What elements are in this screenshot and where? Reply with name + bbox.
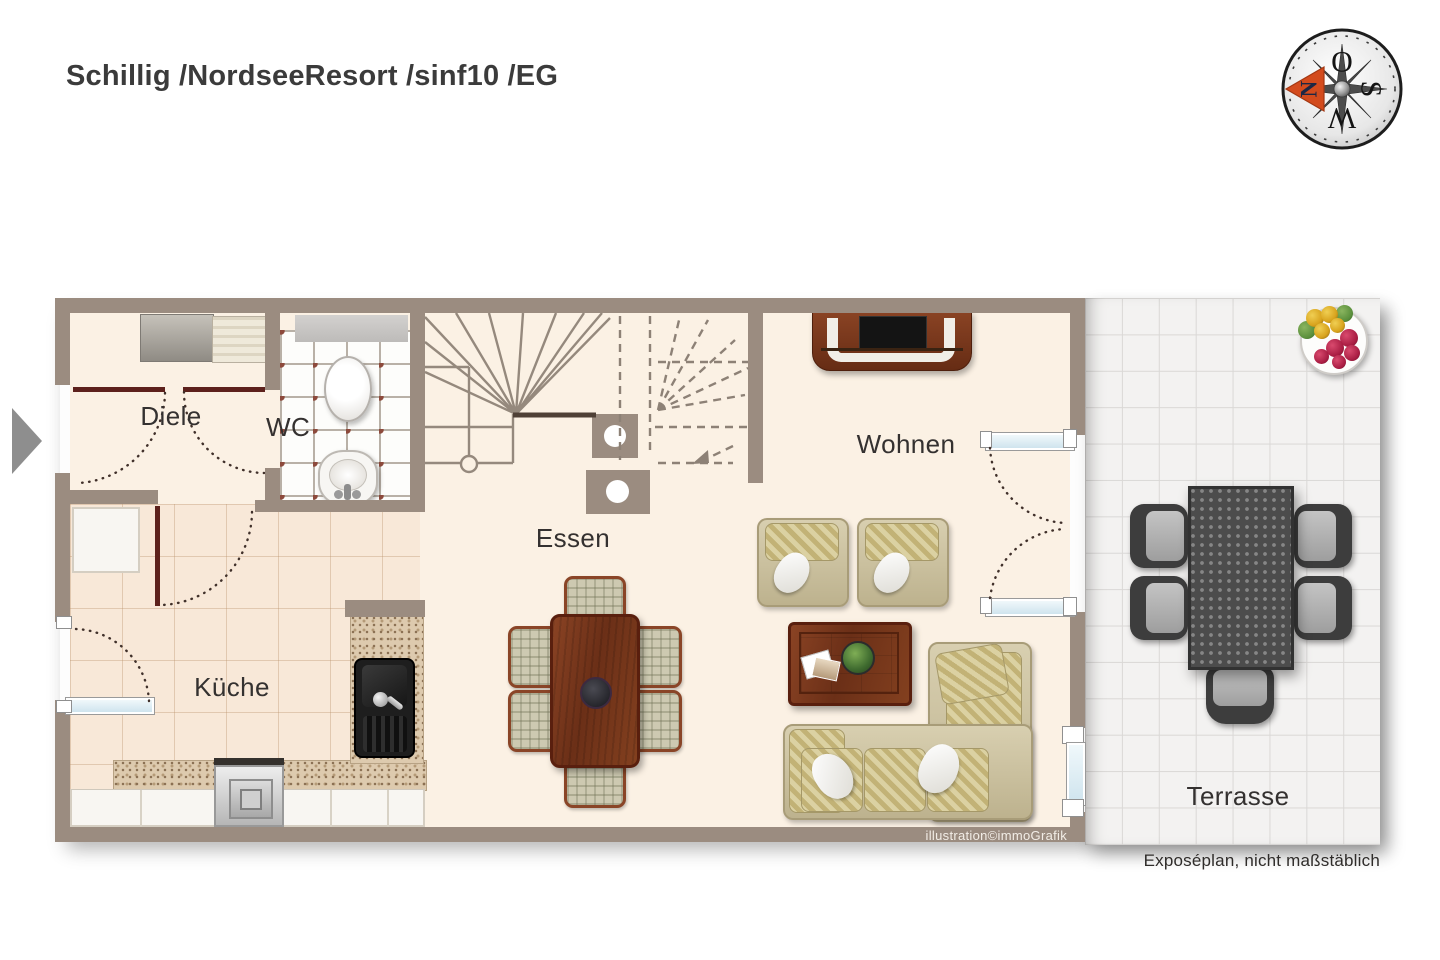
room-label-wc: WC bbox=[266, 412, 328, 443]
compass-center bbox=[1334, 81, 1350, 97]
kitchen-sink bbox=[354, 658, 415, 758]
patio-chair bbox=[1206, 666, 1274, 724]
entrance-arrow-icon bbox=[12, 408, 42, 474]
toilet bbox=[324, 356, 372, 422]
illustration-credit: illustration©immoGrafik bbox=[857, 828, 1067, 843]
wall-diele-bottom bbox=[70, 490, 158, 504]
floorplan-page: Schillig /NordseeResort /sinf10 /EG N O bbox=[0, 0, 1440, 960]
tv-sideboard bbox=[812, 311, 972, 371]
compass-letter-n: N bbox=[1297, 80, 1322, 97]
faucet-spout bbox=[344, 484, 351, 500]
door-frame-cap bbox=[980, 597, 992, 614]
wall-wc-bottom bbox=[255, 500, 425, 512]
patio-chair bbox=[1130, 576, 1188, 640]
patio-chair-seat bbox=[1146, 511, 1184, 561]
terrace-french-door-top bbox=[986, 433, 1074, 450]
post-circle bbox=[606, 480, 629, 503]
flower-icon bbox=[1314, 349, 1329, 364]
page-title: Schillig /NordseeResort /sinf10 /EG bbox=[66, 60, 558, 93]
post-circle bbox=[604, 425, 626, 447]
patio-chair bbox=[1294, 576, 1352, 640]
wall-kitchen-stub bbox=[345, 600, 425, 617]
stove-burner bbox=[240, 789, 262, 810]
flower-icon bbox=[1344, 345, 1360, 361]
faucet-handle bbox=[352, 490, 361, 499]
room-label-wohnen: Wohnen bbox=[846, 429, 966, 460]
patio-chair-seat bbox=[1146, 583, 1184, 633]
terrace-french-door-bottom bbox=[986, 599, 1074, 616]
wall-right bbox=[1070, 612, 1085, 728]
patio-chair bbox=[1130, 504, 1188, 568]
tv-icon bbox=[859, 316, 927, 351]
patio-chair-seat bbox=[1298, 583, 1336, 633]
room-label-diele: Diele bbox=[121, 401, 221, 432]
scale-disclaimer: Exposéplan, nicht maßstäblich bbox=[1000, 851, 1380, 871]
wall-left bbox=[55, 298, 70, 385]
wall-left bbox=[55, 700, 70, 842]
flower-icon bbox=[1314, 323, 1330, 339]
kitchen-door-leaf bbox=[155, 506, 160, 606]
compass-rose: N O S W bbox=[1279, 26, 1405, 152]
door-frame-cap bbox=[56, 616, 72, 629]
plant-icon bbox=[841, 641, 875, 675]
stove bbox=[214, 765, 284, 827]
entrance-door-leaf bbox=[73, 387, 165, 392]
sink-faucet bbox=[373, 692, 388, 707]
wall-diele-wc bbox=[265, 313, 280, 390]
coffee-table bbox=[788, 622, 912, 706]
flower-pot bbox=[1300, 307, 1368, 375]
dining-table bbox=[550, 614, 640, 768]
sideboard-rail bbox=[821, 348, 963, 351]
window-cap bbox=[1062, 726, 1084, 744]
wall-top bbox=[55, 298, 1085, 313]
armchair bbox=[857, 518, 949, 607]
stair-post bbox=[592, 414, 638, 458]
patio-chair-seat bbox=[1298, 511, 1336, 561]
compass-letter-w: W bbox=[1327, 102, 1356, 135]
window-cap bbox=[1062, 799, 1084, 817]
wall-left bbox=[55, 473, 70, 622]
compass-letter-o: O bbox=[1331, 46, 1353, 79]
wc-door-leaf bbox=[183, 387, 265, 392]
table-bowl bbox=[580, 677, 612, 709]
room-label-essen: Essen bbox=[523, 523, 623, 554]
sofa-cushion bbox=[864, 748, 926, 812]
cabinet-divider bbox=[330, 790, 332, 828]
flower-icon bbox=[1332, 355, 1346, 369]
room-label-kueche: Küche bbox=[182, 672, 282, 703]
corner-sofa-bottom bbox=[783, 724, 1033, 820]
door-frame-cap bbox=[1063, 597, 1077, 616]
cabinet-divider bbox=[387, 790, 389, 828]
armchair bbox=[757, 518, 849, 607]
wardrobe bbox=[140, 314, 214, 362]
wall-right bbox=[1070, 298, 1085, 435]
door-frame-cap bbox=[56, 700, 72, 713]
door-frame-cap bbox=[980, 431, 992, 448]
wall-stair-wohnen bbox=[748, 313, 763, 483]
stair-post bbox=[586, 470, 650, 514]
door-frame-cap bbox=[1063, 429, 1077, 448]
faucet-handle bbox=[334, 490, 343, 499]
wall-wc-right bbox=[410, 313, 425, 512]
room-label-terrasse: Terrasse bbox=[1178, 781, 1298, 812]
compass-letter-s: S bbox=[1355, 81, 1388, 98]
cabinet-divider bbox=[140, 790, 142, 828]
patio-table bbox=[1188, 486, 1294, 670]
wardrobe-shelf bbox=[212, 316, 271, 363]
kitchen-cabinet bbox=[72, 507, 140, 573]
sink-drainboard bbox=[363, 716, 407, 752]
patio-chair bbox=[1294, 504, 1352, 568]
washbasin bbox=[318, 450, 378, 506]
wc-shelf bbox=[295, 315, 408, 342]
stove-panel bbox=[214, 758, 284, 765]
wohnen-window bbox=[1067, 743, 1085, 805]
kitchen-glass-door bbox=[66, 698, 154, 714]
patio-chair-seat bbox=[1213, 670, 1267, 706]
